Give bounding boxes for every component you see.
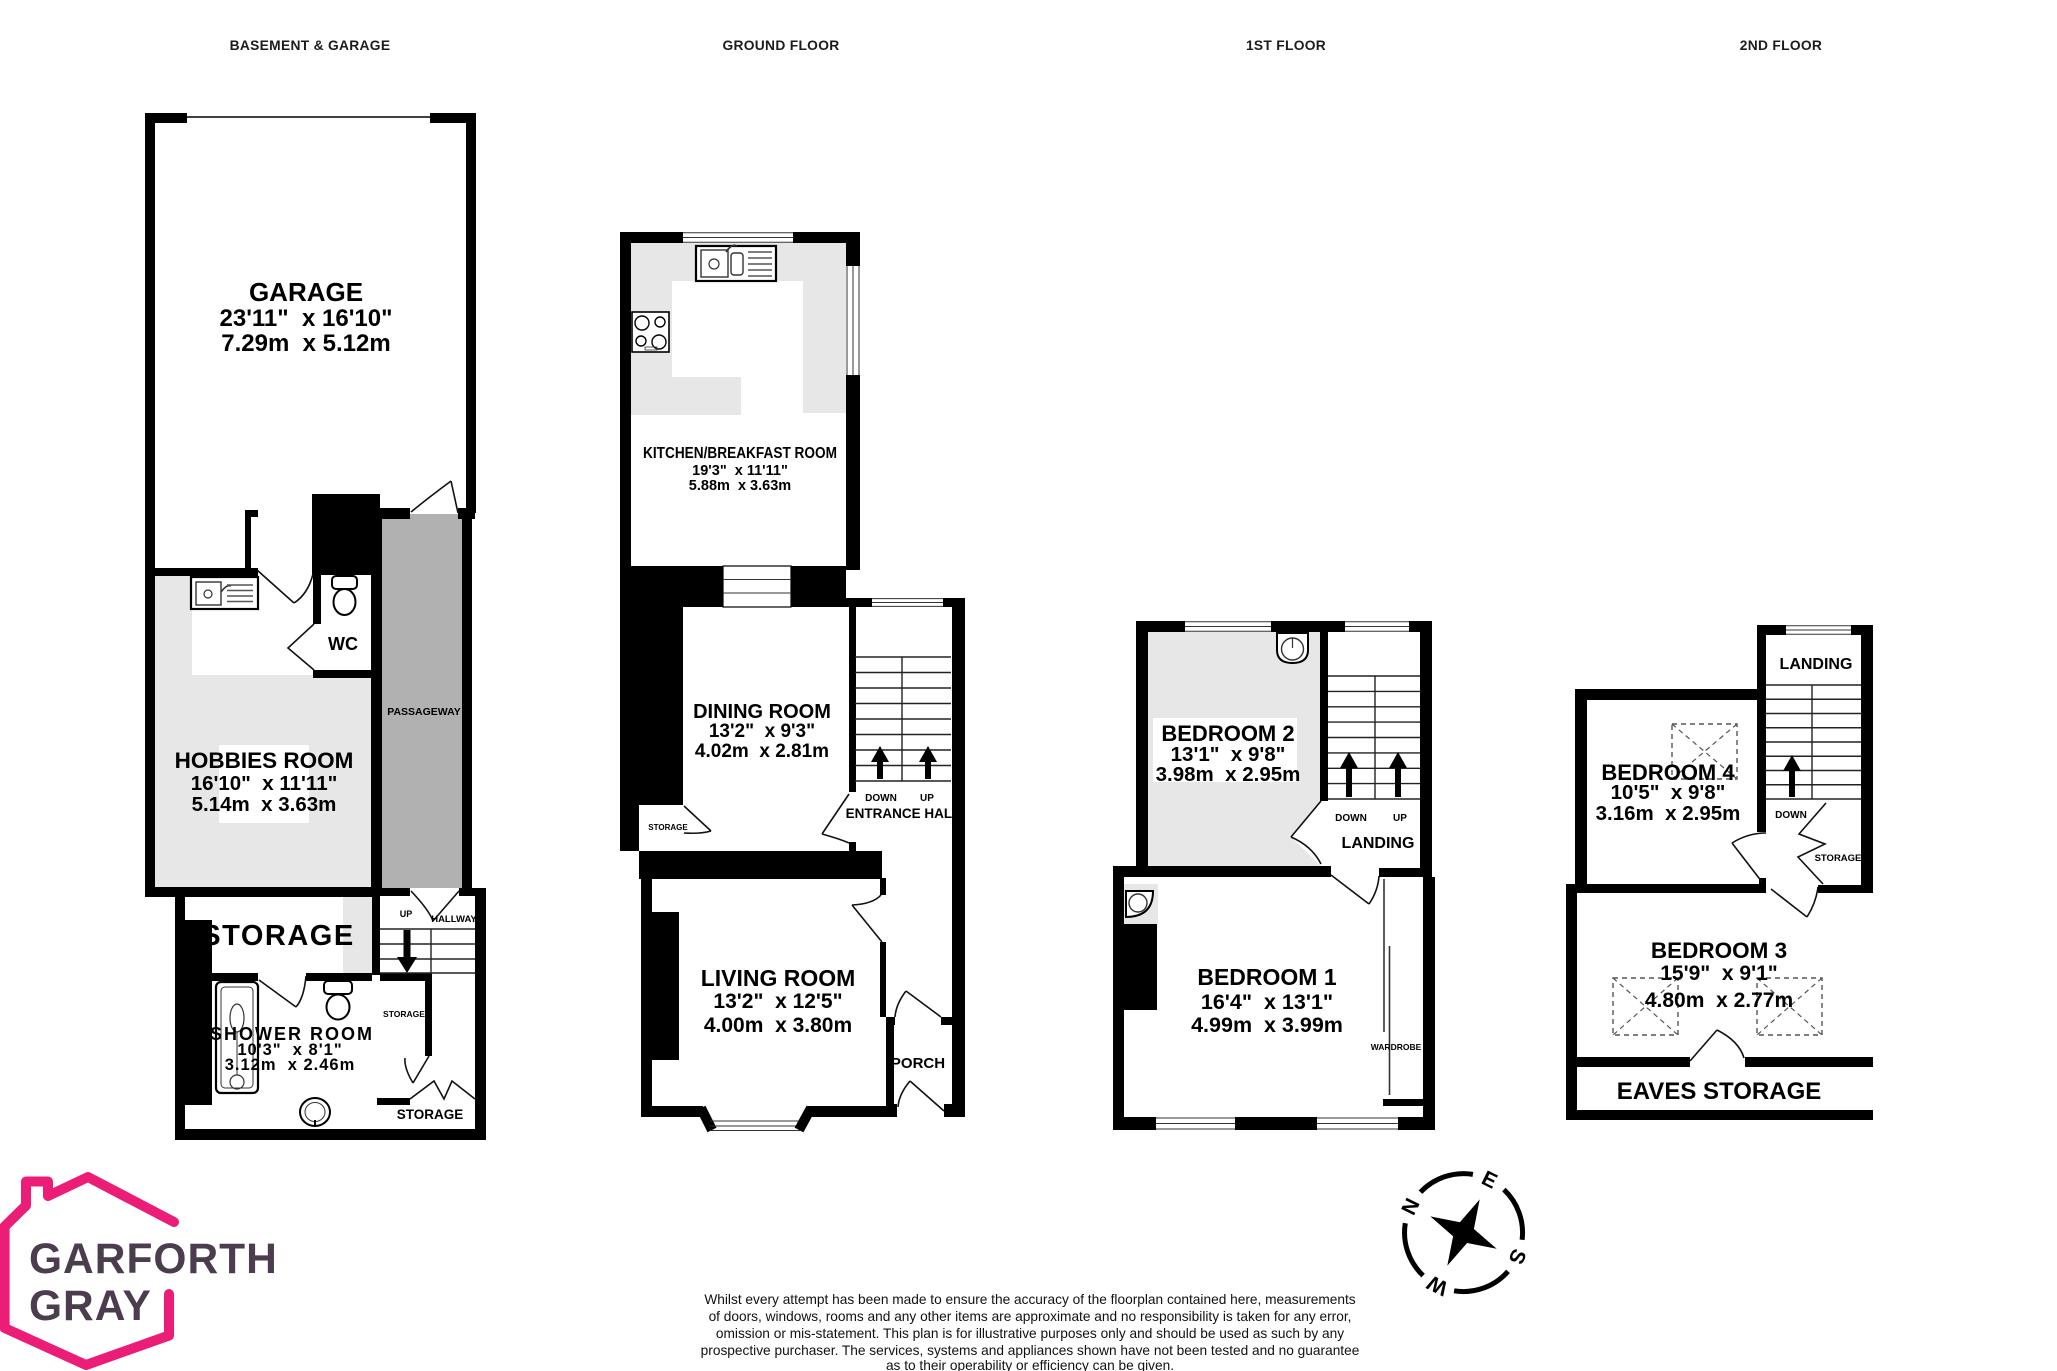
- svg-text:1ST FLOOR: 1ST FLOOR: [1246, 38, 1326, 53]
- svg-text:UP: UP: [400, 909, 413, 919]
- svg-text:LIVING ROOM: LIVING ROOM: [701, 965, 856, 991]
- svg-text:DOWN: DOWN: [1335, 813, 1367, 824]
- svg-text:of doors, windows, rooms and a: of doors, windows, rooms and any other i…: [709, 1309, 1352, 1324]
- svg-text:KITCHEN/BREAKFAST ROOM: KITCHEN/BREAKFAST ROOM: [643, 445, 837, 462]
- svg-text:STORAGE: STORAGE: [383, 1009, 425, 1019]
- svg-text:WC: WC: [328, 634, 358, 654]
- svg-text:7.29m x 5.12m: 7.29m x 5.12m: [221, 330, 390, 357]
- svg-text:16'4" x 13'1": 16'4" x 13'1": [1201, 990, 1333, 1014]
- svg-text:16'10" x 11'11": 16'10" x 11'11": [191, 772, 338, 795]
- svg-text:EAVES STORAGE: EAVES STORAGE: [1617, 1078, 1822, 1105]
- svg-text:3.12m x 2.46m: 3.12m x 2.46m: [225, 1056, 356, 1074]
- svg-text:LANDING: LANDING: [1342, 835, 1415, 852]
- svg-text:2ND FLOOR: 2ND FLOOR: [1740, 38, 1822, 53]
- svg-text:PASSAGEWAY: PASSAGEWAY: [387, 706, 461, 718]
- svg-text:10'5" x 9'8": 10'5" x 9'8": [1611, 781, 1726, 804]
- svg-text:as to their operability or eff: as to their operability or efficiency ca…: [886, 1358, 1174, 1371]
- svg-text:HALLWAY: HALLWAY: [431, 914, 477, 925]
- svg-text:13'2" x 12'5": 13'2" x 12'5": [713, 990, 842, 1013]
- svg-text:23'11" x 16'10": 23'11" x 16'10": [220, 305, 393, 332]
- svg-text:4.02m x 2.81m: 4.02m x 2.81m: [695, 741, 829, 762]
- svg-text:13'2" x 9'3": 13'2" x 9'3": [709, 721, 815, 742]
- svg-text:HOBBIES ROOM: HOBBIES ROOM: [175, 748, 354, 773]
- svg-text:omission or mis-statement. Thi: omission or mis-statement. This plan is …: [716, 1326, 1344, 1341]
- svg-text:Whilst every attempt has been: Whilst every attempt has been made to en…: [704, 1292, 1355, 1307]
- svg-text:UP: UP: [920, 793, 934, 804]
- svg-text:LANDING: LANDING: [1780, 656, 1853, 673]
- svg-text:5.14m x 3.63m: 5.14m x 3.63m: [192, 793, 337, 816]
- svg-text:ENTRANCE HALL: ENTRANCE HALL: [846, 806, 961, 821]
- svg-text:DOWN: DOWN: [865, 793, 897, 804]
- svg-text:15'9" x 9'1": 15'9" x 9'1": [1660, 962, 1777, 985]
- svg-text:GRAY: GRAY: [29, 1283, 152, 1330]
- svg-text:DINING ROOM: DINING ROOM: [693, 701, 831, 723]
- svg-text:GARFORTH: GARFORTH: [29, 1236, 278, 1283]
- svg-text:prospective purchaser. The ser: prospective purchaser. The services, sys…: [701, 1343, 1360, 1358]
- svg-text:STORAGE: STORAGE: [397, 1107, 464, 1122]
- svg-text:5.88m x 3.63m: 5.88m x 3.63m: [689, 478, 791, 494]
- svg-text:BEDROOM 3: BEDROOM 3: [1651, 938, 1787, 963]
- svg-text:BEDROOM 1: BEDROOM 1: [1197, 964, 1337, 990]
- svg-text:4.00m x 3.80m: 4.00m x 3.80m: [704, 1014, 852, 1037]
- svg-text:DOWN: DOWN: [1775, 810, 1807, 821]
- svg-text:STORAGE: STORAGE: [648, 823, 688, 832]
- svg-text:3.16m x 2.95m: 3.16m x 2.95m: [1596, 802, 1741, 825]
- svg-text:WARDROBE: WARDROBE: [1371, 1042, 1422, 1052]
- svg-text:PORCH: PORCH: [891, 1055, 945, 1072]
- svg-text:3.98m x 2.95m: 3.98m x 2.95m: [1156, 763, 1301, 786]
- svg-text:STORAGE: STORAGE: [201, 920, 354, 952]
- svg-text:UP: UP: [1393, 813, 1407, 824]
- svg-text:4.99m x 3.99m: 4.99m x 3.99m: [1191, 1013, 1343, 1037]
- svg-text:GROUND FLOOR: GROUND FLOOR: [722, 38, 839, 53]
- svg-text:STORAGE: STORAGE: [1815, 853, 1862, 864]
- svg-text:BASEMENT & GARAGE: BASEMENT & GARAGE: [230, 38, 391, 53]
- svg-text:GARAGE: GARAGE: [249, 277, 363, 307]
- svg-text:4.80m x 2.77m: 4.80m x 2.77m: [1645, 989, 1793, 1012]
- svg-text:19'3" x 11'11": 19'3" x 11'11": [692, 463, 788, 479]
